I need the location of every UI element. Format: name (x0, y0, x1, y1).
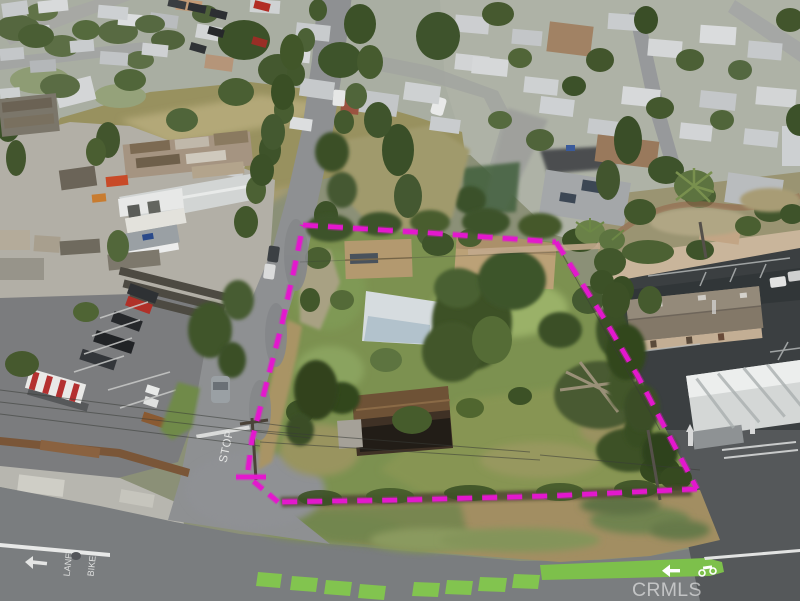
svg-text:BIKE: BIKE (86, 555, 98, 576)
svg-text:CRMLS: CRMLS (632, 579, 702, 601)
